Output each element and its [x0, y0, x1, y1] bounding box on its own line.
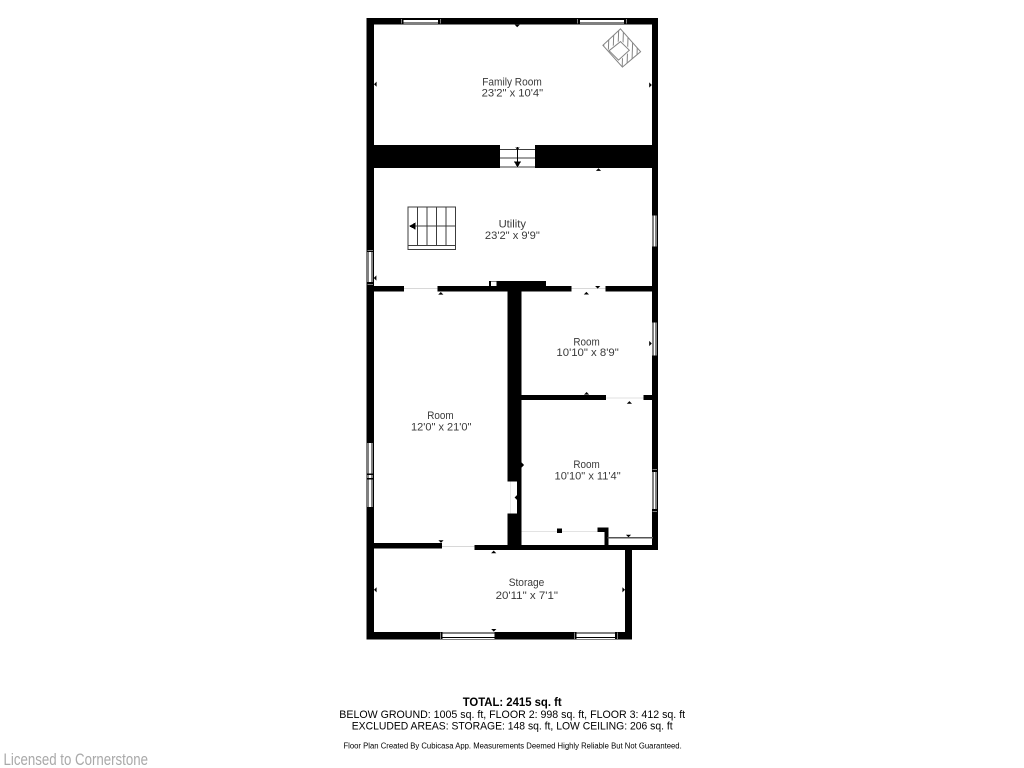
svg-text:10'10" x 11'4": 10'10" x 11'4"	[555, 470, 621, 482]
svg-text:Room: Room	[427, 410, 453, 422]
svg-text:23'2" x 10'4": 23'2" x 10'4"	[482, 88, 544, 100]
svg-text:TOTAL: 2415 sq. ft: TOTAL: 2415 sq. ft	[463, 696, 562, 709]
svg-text:Utility: Utility	[499, 218, 527, 230]
svg-text:Floor Plan Created By Cubicasa: Floor Plan Created By Cubicasa App. Meas…	[343, 741, 681, 750]
svg-text:EXCLUDED AREAS: STORAGE: 148 s: EXCLUDED AREAS: STORAGE: 148 sq. ft, LOW…	[352, 721, 674, 733]
svg-text:BELOW GROUND: 1005 sq. ft, FLO: BELOW GROUND: 1005 sq. ft, FLOOR 2: 998 …	[339, 709, 686, 721]
svg-text:23'2" x 9'9": 23'2" x 9'9"	[485, 230, 540, 242]
svg-text:20'11" x 7'1": 20'11" x 7'1"	[496, 590, 559, 602]
svg-text:10'10" x 8'9": 10'10" x 8'9"	[556, 347, 618, 359]
svg-text:Storage: Storage	[509, 577, 545, 589]
svg-text:Room: Room	[573, 459, 599, 471]
svg-text:Licensed to Cornerstone: Licensed to Cornerstone	[4, 750, 149, 768]
svg-text:12'0" x 21'0": 12'0" x 21'0"	[411, 421, 472, 433]
